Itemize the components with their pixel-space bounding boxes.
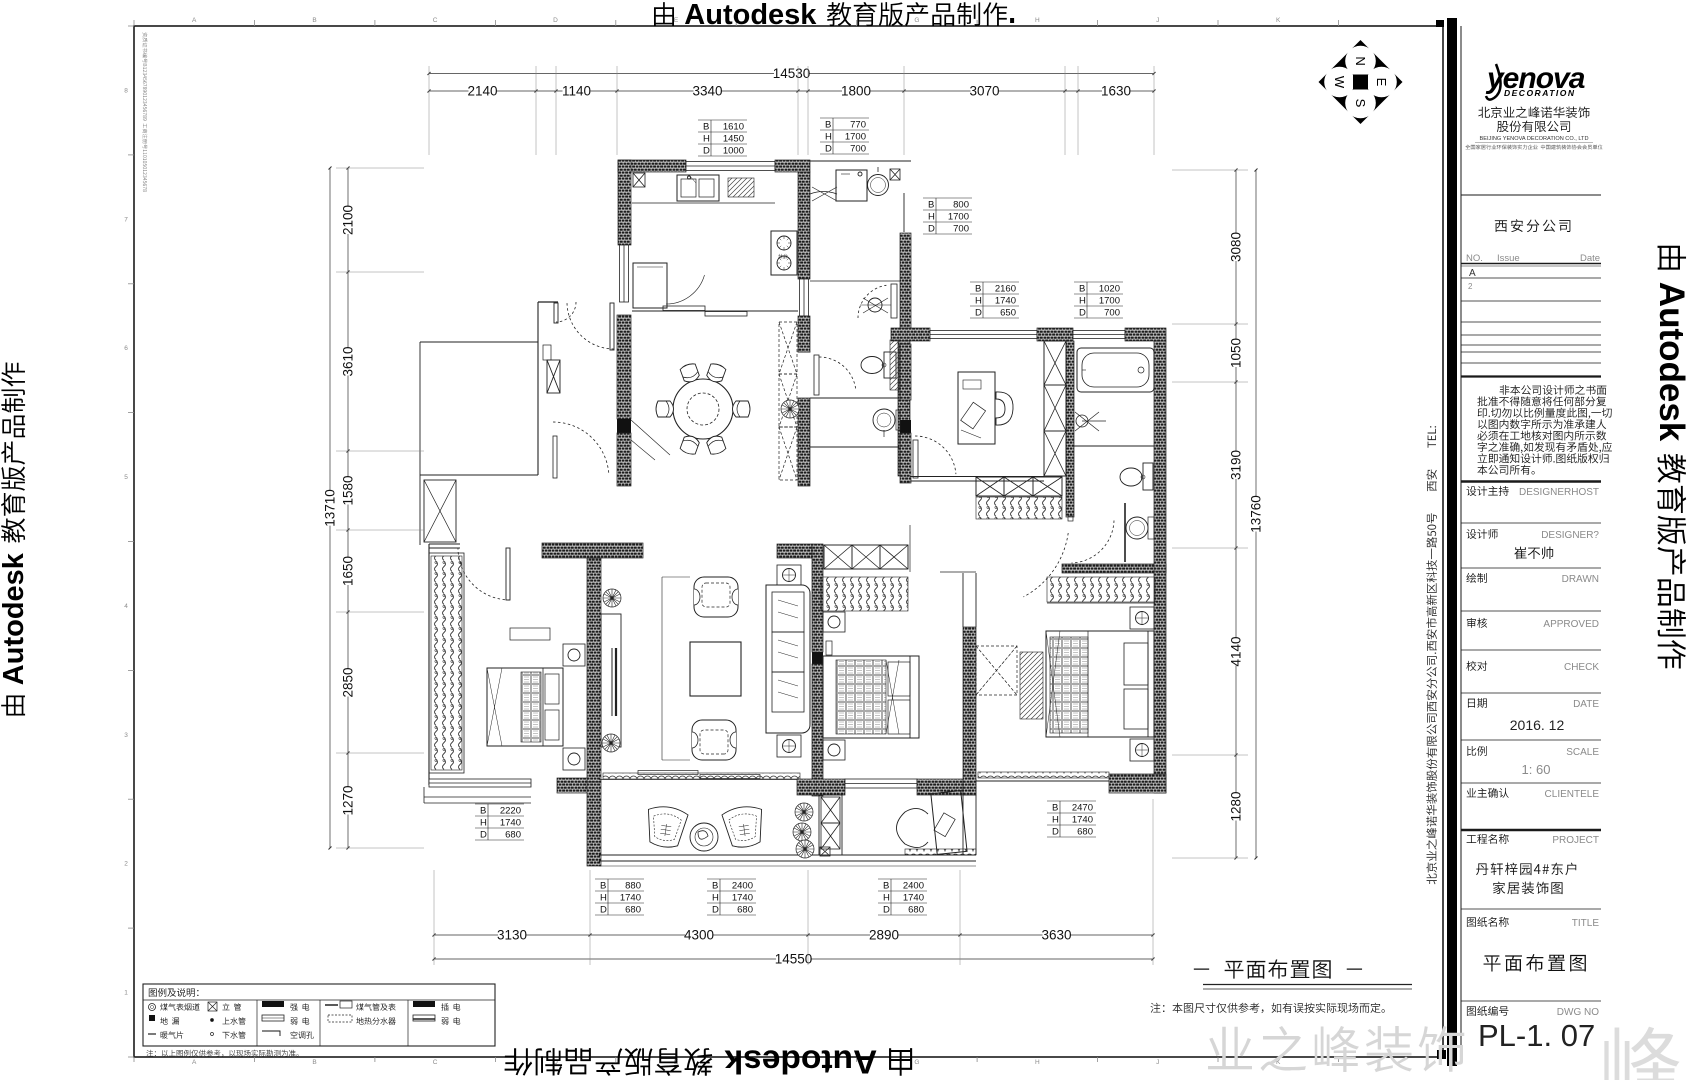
svg-text:Autodesk: Autodesk [724,1043,877,1080]
svg-text:680: 680 [1077,827,1093,838]
svg-text:B: B [600,881,606,892]
svg-text:1270: 1270 [340,785,355,815]
svg-text:B: B [928,200,934,211]
svg-text:1610: 1610 [723,122,744,133]
svg-text:1740: 1740 [995,296,1016,307]
svg-text:1000: 1000 [723,146,744,157]
svg-text:J: J [1156,1059,1159,1066]
svg-text:1280: 1280 [1228,791,1243,821]
svg-text:SCALE: SCALE [1566,747,1599,758]
svg-text:APPROVED: APPROVED [1543,619,1599,630]
svg-text:2160: 2160 [995,284,1016,295]
svg-text:H: H [1052,815,1059,826]
svg-text:D: D [883,905,890,916]
svg-text:Autodesk: Autodesk [1652,282,1687,442]
svg-text:770: 770 [850,120,866,131]
svg-text:1450: 1450 [723,134,744,145]
svg-text:6: 6 [124,345,128,352]
svg-text:1740: 1740 [903,893,924,904]
svg-text:D: D [1052,827,1059,838]
svg-text:PROJECT: PROJECT [1552,835,1599,846]
svg-text:N: N [1353,56,1368,65]
svg-text:D: D [712,905,719,916]
svg-text:8: 8 [124,87,128,94]
svg-text:1740: 1740 [732,893,753,904]
svg-text:1: 60: 1: 60 [1522,762,1551,777]
svg-text:1: 1 [124,990,128,997]
svg-text:2220: 2220 [500,806,521,817]
svg-text:680: 680 [908,905,924,916]
svg-text:3: 3 [124,732,128,739]
svg-text:H: H [928,212,935,223]
svg-text:A: A [1469,268,1476,279]
svg-text:14550: 14550 [775,951,813,966]
svg-text:B: B [1079,284,1085,295]
svg-text:1740: 1740 [1072,815,1093,826]
svg-text:2400: 2400 [903,881,924,892]
svg-text:650: 650 [1000,308,1016,319]
svg-text:H: H [1035,1059,1040,1066]
svg-text:H: H [712,893,719,904]
svg-text:C: C [433,1059,438,1066]
svg-text:W: W [1332,76,1347,89]
svg-text:1020: 1020 [1099,284,1120,295]
svg-text:4: 4 [124,603,128,610]
svg-text:4140: 4140 [1228,636,1243,666]
svg-text:H: H [883,893,890,904]
svg-text:PL-1. 07: PL-1. 07 [1478,1018,1595,1053]
svg-text:DECORATION: DECORATION [1504,88,1576,98]
svg-text:680: 680 [625,905,641,916]
svg-text:2016. 12: 2016. 12 [1510,717,1565,733]
svg-text:B: B [312,17,316,24]
svg-text:1050: 1050 [1228,338,1243,368]
svg-text:1700: 1700 [1099,296,1120,307]
svg-text:2890: 2890 [869,927,899,942]
svg-text:C: C [433,17,438,24]
svg-text:G: G [914,17,919,24]
svg-text:1740: 1740 [500,818,521,829]
svg-text:B: B [703,122,709,133]
svg-text:1740: 1740 [620,893,641,904]
svg-text:H: H [703,134,710,145]
svg-text:S: S [1353,99,1368,108]
svg-text:B: B [312,1059,316,1066]
svg-text:B: B [825,120,831,131]
svg-text:1580: 1580 [340,475,355,505]
svg-text:H: H [975,296,982,307]
svg-text:K: K [1276,17,1281,24]
svg-text:4300: 4300 [684,927,714,942]
svg-text:14530: 14530 [773,66,811,81]
svg-text:H: H [825,132,832,143]
svg-text:Autodesk: Autodesk [684,0,817,31]
svg-text:2100: 2100 [340,205,355,235]
svg-text:800: 800 [953,200,969,211]
svg-text:B: B [883,881,889,892]
svg-text:3190: 3190 [1228,450,1243,480]
svg-text:5: 5 [124,474,128,481]
svg-text:13760: 13760 [1248,495,1263,533]
svg-text:1650: 1650 [340,556,355,586]
svg-text:Issue: Issue [1497,253,1520,264]
svg-text:3340: 3340 [692,83,722,98]
svg-text:3070: 3070 [969,83,999,98]
svg-text:D: D [703,146,710,157]
svg-text:D: D [825,144,832,155]
svg-text:D: D [928,224,935,235]
svg-text:Date: Date [1580,253,1600,264]
svg-text:1700: 1700 [845,132,866,143]
svg-text:700: 700 [1104,308,1120,319]
svg-text:TITLE: TITLE [1572,918,1600,929]
svg-text:7: 7 [124,216,128,223]
svg-text:H: H [480,818,487,829]
svg-text:B: B [480,806,486,817]
svg-text:DATE: DATE [1573,699,1599,710]
svg-text:3630: 3630 [1041,927,1071,942]
svg-text:A: A [192,1059,197,1066]
svg-text:2400: 2400 [732,881,753,892]
svg-text:3610: 3610 [340,346,355,376]
svg-text:DESIGNER?: DESIGNER? [1541,530,1599,541]
svg-text:D: D [480,830,487,841]
svg-text:2: 2 [1468,282,1473,291]
svg-text:880: 880 [625,881,641,892]
svg-text:NO.: NO. [1466,253,1483,264]
svg-text:1630: 1630 [1101,83,1131,98]
svg-text:B: B [1052,803,1058,814]
svg-text:B: B [712,881,718,892]
svg-text:2850: 2850 [340,667,355,697]
svg-text:3080: 3080 [1228,232,1243,262]
svg-text:H: H [600,893,607,904]
svg-text:E: E [674,17,679,24]
svg-text:13710: 13710 [322,489,337,527]
svg-text:700: 700 [953,224,969,235]
svg-text:B: B [975,284,981,295]
svg-text:A: A [192,17,197,24]
svg-text:2470: 2470 [1072,803,1093,814]
svg-text:700: 700 [850,144,866,155]
svg-text:1800: 1800 [841,83,871,98]
svg-text:2140: 2140 [467,83,497,98]
svg-text:G: G [914,1059,919,1066]
svg-text:680: 680 [505,830,521,841]
svg-text:Autodesk: Autodesk [0,552,30,685]
svg-text:DRAWN: DRAWN [1562,574,1599,585]
svg-text:D: D [1079,308,1086,319]
svg-text:DWG NO: DWG NO [1557,1007,1599,1018]
svg-text:D: D [553,17,558,24]
svg-text:CLIENTELE: CLIENTELE [1545,789,1600,800]
svg-text:BEIJING YENOVA DECORATION CO.,: BEIJING YENOVA DECORATION CO., LTD [1480,136,1589,142]
svg-text:1700: 1700 [948,212,969,223]
svg-text:E: E [1374,78,1389,87]
svg-text:H: H [1079,296,1086,307]
svg-text:H: H [1035,17,1040,24]
svg-text:1140: 1140 [562,83,591,98]
svg-text:3130: 3130 [497,927,527,942]
svg-text:680: 680 [737,905,753,916]
svg-text:D: D [975,308,982,319]
svg-text:J: J [1156,17,1159,24]
svg-text:2: 2 [124,861,128,868]
svg-text:DESIGNERHOST: DESIGNERHOST [1519,487,1599,498]
svg-text:CHECK: CHECK [1564,662,1599,673]
svg-text:D: D [600,905,607,916]
